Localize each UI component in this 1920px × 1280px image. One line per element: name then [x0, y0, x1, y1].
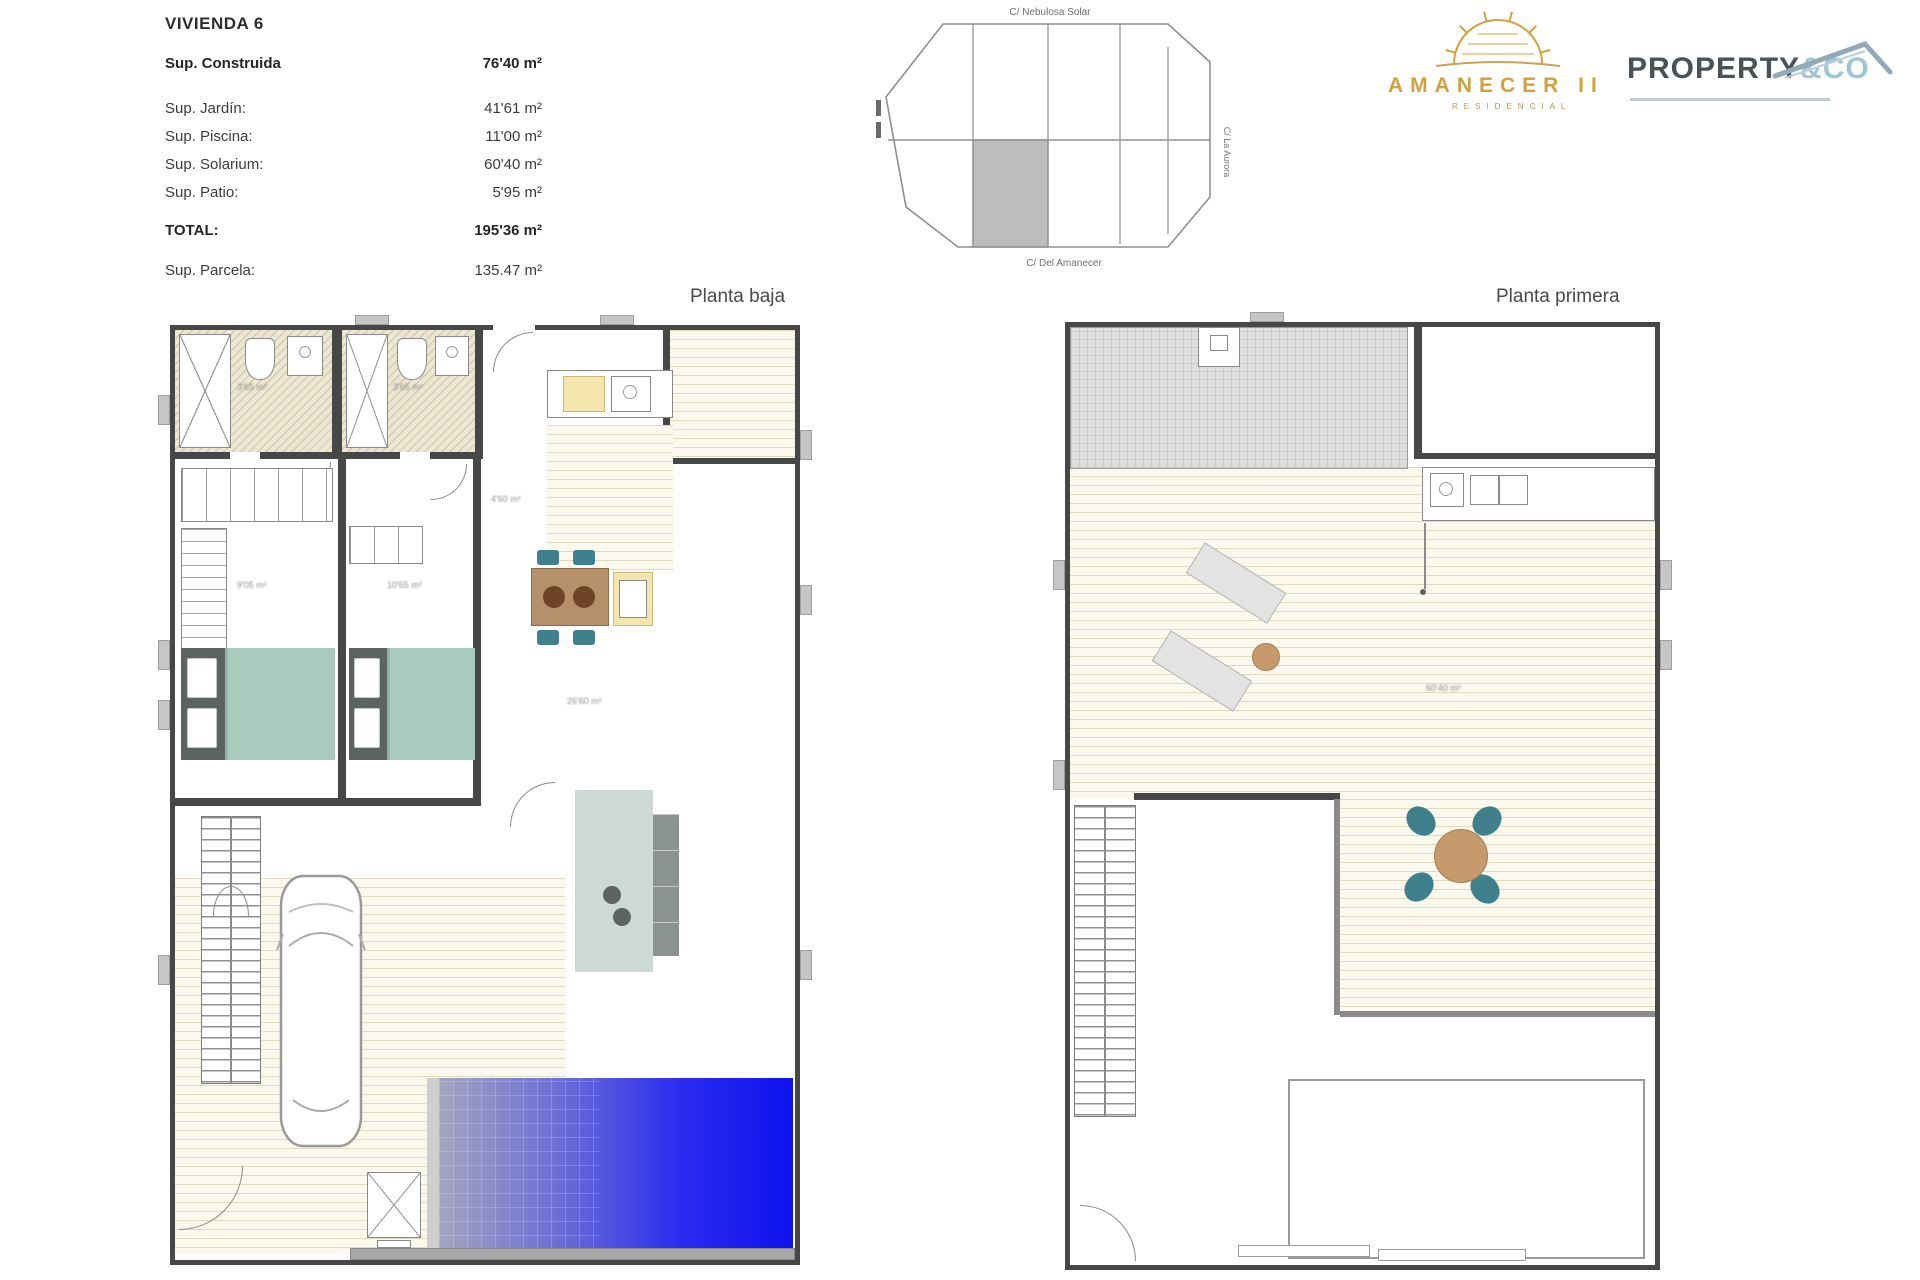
lower-door-arc [1080, 1205, 1136, 1261]
kitchenette-basin [1439, 482, 1453, 496]
window-marker [600, 315, 634, 325]
bed2-mattress [387, 648, 475, 760]
dining-chair [573, 630, 595, 645]
spec-value: 135.47 m² [474, 262, 542, 279]
street-label-bottom: C/ Del Amanecer [1026, 258, 1102, 269]
bed2-pillow [354, 658, 380, 698]
toilet-2 [397, 338, 427, 380]
patio-terrace [670, 330, 795, 458]
kitchen-island-sink [619, 580, 647, 618]
pool-deck-edge [350, 1248, 795, 1260]
window-marker [158, 640, 170, 670]
coffee-table [603, 886, 621, 904]
pergola-chimney-inner [1210, 335, 1228, 351]
window-marker [355, 315, 389, 325]
door-opening [400, 452, 430, 459]
terrace-deck [1340, 799, 1655, 1013]
spec-label: Sup. Patio: [165, 184, 238, 201]
spec-label: Sup. Jardín: [165, 100, 246, 117]
pool-grid-overlay [439, 1078, 599, 1250]
window-marker [1250, 312, 1284, 322]
property-roof-icon [1770, 36, 1920, 84]
spec-value: 195'36 m² [474, 222, 542, 239]
dining-chair [537, 630, 559, 645]
wall [670, 458, 795, 464]
terrace-table [1434, 829, 1488, 883]
bed1-pillow [187, 658, 217, 698]
kitchenette-unit-divider [1498, 475, 1500, 505]
spec-value: 76'40 m² [483, 55, 542, 72]
room-label-bed1: 9'05 m² [237, 580, 267, 590]
window-marker [1053, 760, 1065, 790]
window-marker [800, 950, 812, 980]
room-label-hall: 4'60 m² [491, 494, 521, 504]
spec-value: 60'40 m² [484, 156, 542, 173]
wall [332, 330, 342, 452]
street-label-right: C/ La Aurora [1222, 127, 1232, 178]
kitchen-floor [547, 425, 673, 570]
dining-plate [543, 586, 565, 608]
plan-title-primera: Planta primera [1496, 286, 1620, 308]
bedroom2-door-arc [431, 464, 467, 500]
floorplan-sheet: VIVIENDA 6 Sup. Construida 76'40 m² Sup.… [0, 0, 1920, 1280]
drain-dot [1420, 589, 1426, 595]
window-marker [1660, 640, 1672, 670]
street-label-top: C/ Nebulosa Solar [1009, 7, 1091, 18]
upper-room [1414, 327, 1655, 459]
bed2-pillow [354, 708, 380, 748]
sink-1-basin [299, 346, 311, 358]
window-marker [158, 700, 170, 730]
dining-plate [573, 586, 595, 608]
partition-line [1424, 523, 1426, 589]
wall [1340, 1011, 1655, 1017]
outdoor-shower [367, 1172, 421, 1238]
plan-planta-primera: 60'40 m² [1065, 322, 1660, 1270]
spec-row-parcela: Sup. Parcela: 135.47 m² [165, 262, 542, 279]
wardrobe-1 [181, 468, 333, 522]
spec-row-patio: Sup. Patio: 5'95 m² [165, 184, 542, 201]
outdoor-shower-tray [377, 1240, 411, 1248]
bed1-pillow [187, 708, 217, 748]
window-marker [1660, 560, 1672, 590]
toilet-1 [245, 338, 275, 380]
amanecer-logo-text: AMANECER II [1388, 74, 1604, 98]
shower-2 [346, 334, 388, 448]
entry-door-arc [493, 332, 533, 372]
sofa [653, 814, 679, 956]
wardrobe-2 [349, 526, 423, 564]
sink-2-basin [446, 346, 458, 358]
plan-title-baja: Planta baja [690, 286, 785, 308]
living-door-arc [510, 782, 555, 827]
dining-chair [537, 550, 559, 565]
spec-row-solarium: Sup. Solarium: 60'40 m² [165, 156, 542, 173]
bed1-mattress [225, 648, 335, 760]
spec-row-piscina: Sup. Piscina: 11'00 m² [165, 128, 542, 145]
wall [175, 798, 481, 806]
room-label-living: 26'60 m² [567, 696, 602, 706]
entry-opening [493, 325, 535, 330]
site-location-plan: C/ Nebulosa Solar C/ Del Amanecer C/ La … [868, 2, 1233, 274]
window-marker [800, 430, 812, 460]
wall [475, 330, 483, 459]
site-highlighted-plot [973, 140, 1048, 247]
room-label-bath2: 3'65 m² [393, 382, 423, 392]
window-marker [1053, 560, 1065, 590]
coffee-table [613, 908, 631, 926]
door-opening [230, 452, 260, 459]
roof-edge-bar [1378, 1249, 1526, 1261]
side-table [1252, 643, 1280, 671]
wall [175, 452, 483, 459]
wall [1134, 793, 1340, 800]
spec-row-jardin: Sup. Jardín: 41'61 m² [165, 100, 542, 117]
window-marker [158, 395, 170, 425]
site-left-mark [876, 122, 881, 138]
window-marker [158, 955, 170, 985]
spec-value: 11'00 m² [485, 128, 542, 145]
kitchen-sink-basin [623, 385, 637, 399]
roof-edge-bar [1238, 1245, 1370, 1257]
wall [338, 459, 346, 806]
living-rug [575, 790, 653, 972]
spec-value: 5'95 m² [492, 184, 542, 201]
room-label-solarium: 60'40 m² [1426, 683, 1461, 693]
kitchen-cooktop [563, 376, 605, 412]
room-label-bath1: 3'65 m² [237, 382, 267, 392]
spec-label: TOTAL: [165, 222, 219, 239]
plan-planta-baja: 3'65 m² 3'65 m² 9'05 m² 10'65 m² 26'60 m… [170, 325, 800, 1265]
spec-label: Sup. Piscina: [165, 128, 253, 145]
spec-label: Sup. Parcela: [165, 262, 255, 279]
site-left-mark [876, 100, 881, 116]
car-icon [275, 868, 367, 1154]
page-title: VIVIENDA 6 [165, 14, 264, 34]
stair-rail [230, 816, 232, 1084]
lower-roof [1288, 1079, 1645, 1259]
dining-chair [573, 550, 595, 565]
stair-rail [1104, 805, 1106, 1117]
amanecer-sun-icon [1428, 6, 1568, 70]
spec-row-construida: Sup. Construida 76'40 m² [165, 55, 542, 72]
property-logo-tagline-bar [1630, 98, 1830, 101]
spec-label: Sup. Solarium: [165, 156, 263, 173]
pool-coping [427, 1078, 439, 1250]
spec-row-total: TOTAL: 195'36 m² [165, 222, 542, 239]
spec-value: 41'61 m² [484, 100, 542, 117]
window-marker [800, 585, 812, 615]
room-label-bed2: 10'65 m² [387, 580, 422, 590]
shower-1 [179, 334, 231, 448]
amanecer-logo-subtitle: RESIDENCIAL [1452, 102, 1571, 111]
spec-label: Sup. Construida [165, 55, 281, 72]
